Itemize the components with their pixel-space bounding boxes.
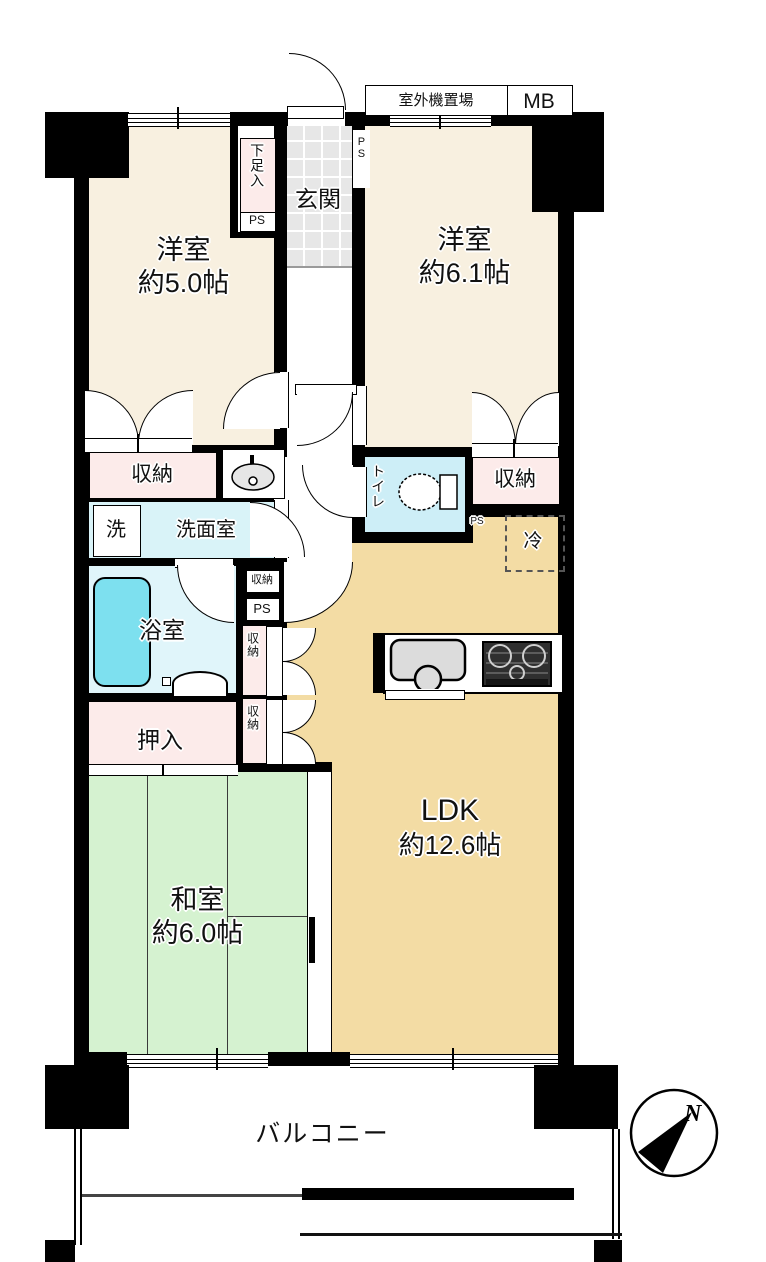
window: [350, 1054, 558, 1068]
closet-label: 収納: [245, 632, 260, 658]
wall-right: [558, 112, 574, 1065]
balcony-edge-line: [74, 1129, 76, 1245]
room-area: 約6.1帖: [372, 257, 557, 290]
balcony-edge-line: [612, 1129, 614, 1239]
washroom-label: 洗面室: [150, 518, 262, 542]
compass: N: [628, 1085, 724, 1181]
compass-north-label: N: [683, 1101, 703, 1127]
wall: [352, 445, 365, 467]
room-label-western-1: 洋室 約5.0帖: [96, 234, 271, 300]
balcony-rail-thick: [302, 1188, 574, 1200]
window-tick: [452, 1048, 454, 1070]
pillar-top-right: [532, 112, 604, 212]
threshold-tick: [513, 439, 515, 457]
balcony-edge-line: [618, 1129, 620, 1239]
room-name: 洋室: [96, 234, 271, 267]
balcony-lower-line: [300, 1233, 622, 1236]
wall: [230, 112, 288, 126]
wall: [268, 1052, 350, 1066]
kitchen-sink-icon: [388, 637, 468, 689]
closet-label: 収納: [474, 467, 556, 493]
wall: [89, 558, 175, 566]
washbasin-icon: [224, 451, 282, 496]
entry-door-leaf: [287, 106, 344, 119]
entry-door-arc: [289, 53, 346, 110]
balcony-corner-block: [45, 1240, 75, 1262]
pillar-bottom-right: [534, 1065, 618, 1129]
room-area: 約6.0帖: [110, 917, 285, 950]
bathroom-label: 浴室: [128, 616, 196, 644]
kitchen-counter-lip: [385, 690, 465, 700]
door-leaf: [352, 467, 367, 517]
balcony-edge-line: [80, 1129, 82, 1245]
ps-label: PS: [354, 136, 367, 160]
closet-label: 収納: [245, 705, 260, 731]
floor-plan: N 洋室 約5.0帖 洋室 約6.1帖 LDK 約12.6帖 和室 約6.0帖 …: [0, 0, 766, 1262]
room-name: 洋室: [372, 224, 557, 257]
window: [127, 1054, 268, 1068]
window-tick: [216, 1048, 218, 1070]
toilet-icon: [396, 466, 464, 518]
threshold-tick: [137, 434, 139, 452]
shoe-box-label: 下足入: [248, 143, 265, 188]
wall-kitchen-stub: [373, 633, 383, 693]
room-label-japanese: 和室 約6.0帖: [110, 884, 285, 950]
room-name: LDK: [355, 793, 545, 830]
ps-label: PS: [246, 601, 278, 617]
room-label-ldk: LDK 約12.6帖: [355, 793, 545, 861]
bath-fixture-icon: [162, 677, 171, 686]
bath-drain-icon: [172, 671, 228, 696]
window-tick: [177, 107, 179, 129]
entrance-label: 玄関: [286, 185, 350, 213]
meter-box-label: MB: [509, 89, 569, 115]
wall-left: [74, 112, 89, 1065]
window: [128, 113, 230, 127]
pillar-bottom-left: [45, 1065, 129, 1129]
closet-label: 収納: [246, 574, 278, 587]
closet-threshold: [472, 443, 558, 458]
wall: [352, 532, 473, 543]
closet-door-leaf: [266, 626, 283, 697]
room-area: 約5.0帖: [96, 267, 271, 300]
fusuma-handle: [309, 917, 315, 963]
closet-label: 収納: [96, 462, 208, 488]
balcony-corner-block: [594, 1240, 622, 1262]
oshiire-label: 押入: [110, 726, 210, 754]
stove-icon: [482, 641, 552, 687]
toilet-label: トイレ: [369, 464, 386, 509]
washer-label: 洗: [94, 518, 138, 542]
outdoor-unit-label: 室外機置場: [367, 92, 505, 110]
fridge-label: 冷: [508, 530, 558, 553]
wall: [230, 126, 238, 238]
balcony-label: バルコニー: [215, 1119, 430, 1150]
wall: [74, 1052, 127, 1066]
room-name: 和室: [110, 884, 285, 917]
pillar-top-left: [45, 112, 129, 178]
closet-door-leaf: [266, 699, 283, 765]
room-label-western-2: 洋室 約6.1帖: [372, 224, 557, 290]
wall: [365, 447, 472, 457]
room-area: 約12.6帖: [355, 830, 545, 862]
balcony-rail-thin: [80, 1194, 302, 1197]
ps-label: PS: [466, 516, 488, 528]
ps-label: PS: [240, 213, 274, 228]
